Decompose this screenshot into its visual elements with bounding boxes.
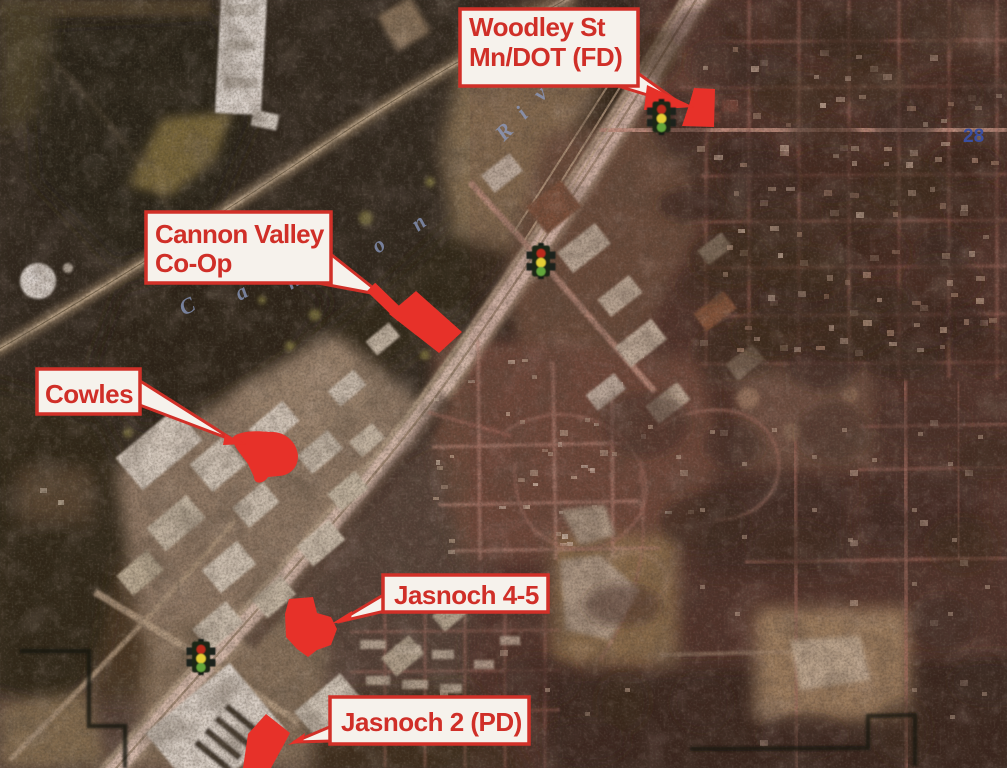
svg-text:Jasnoch 2 (PD): Jasnoch 2 (PD) — [341, 707, 522, 737]
svg-text:Co-Op: Co-Op — [155, 248, 232, 278]
svg-text:Cowles: Cowles — [45, 379, 133, 409]
svg-text:Cannon Valley: Cannon Valley — [155, 219, 325, 249]
svg-text:Jasnoch 4-5: Jasnoch 4-5 — [394, 580, 539, 610]
svg-text:28: 28 — [963, 126, 984, 147]
svg-text:Mn/DOT (FD): Mn/DOT (FD) — [469, 42, 622, 72]
svg-text:Woodley St: Woodley St — [469, 12, 606, 42]
